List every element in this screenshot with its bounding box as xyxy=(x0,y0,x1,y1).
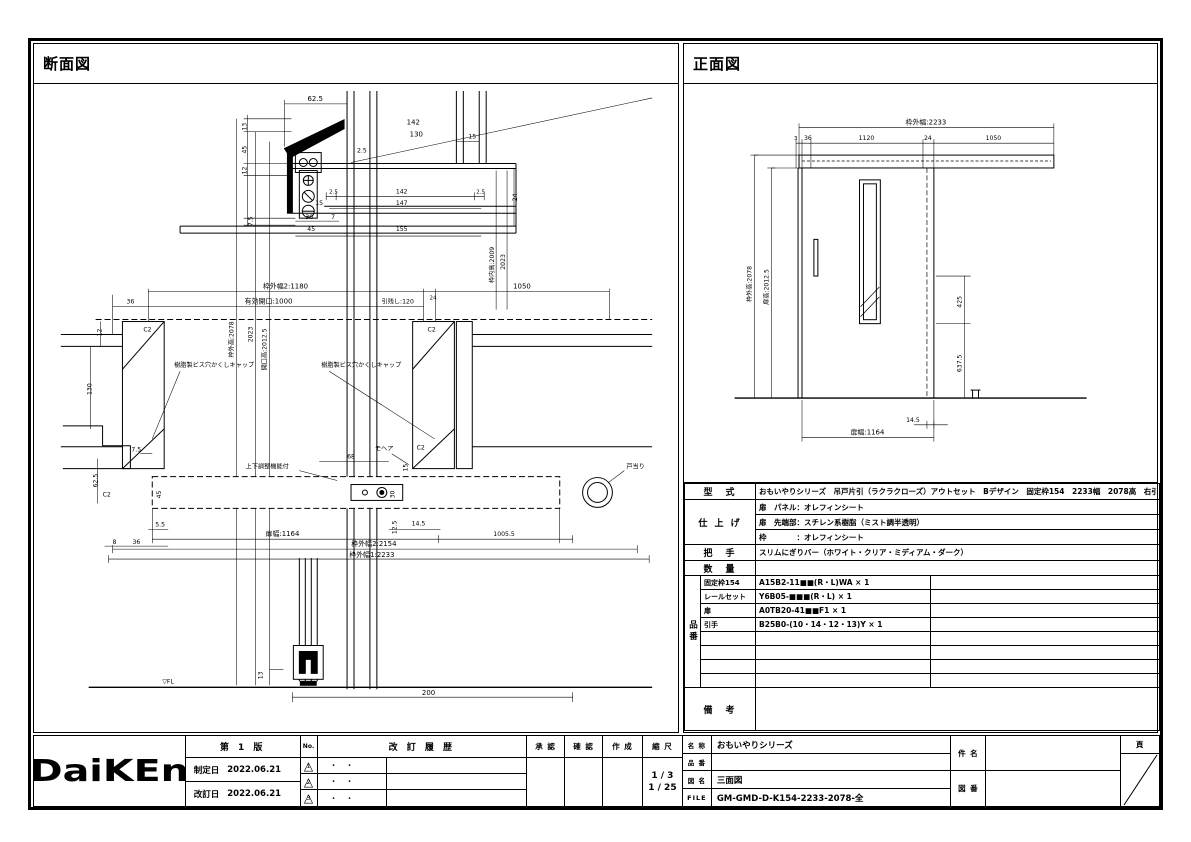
dim-label: 130 xyxy=(87,383,94,395)
dim-label: 24 xyxy=(924,135,932,142)
spec-part-code: A15B2-11■■(R・L)WA × 1 xyxy=(756,576,931,590)
callout-label: モヘア xyxy=(375,446,393,453)
dim-label: 開口高:2012.5 xyxy=(261,328,269,370)
dim-label: 2.5 xyxy=(357,148,367,155)
dim-label: 130 xyxy=(410,131,423,139)
dim-label: 枠外幅2:1180 xyxy=(263,282,308,291)
dim-label: 2.5 xyxy=(329,189,338,195)
dim-label: 62.5 xyxy=(308,95,323,103)
dim-label: 142 xyxy=(407,119,420,127)
dim-label: 13 xyxy=(258,671,265,679)
revised-date-row: 改訂日 2022.06.21 xyxy=(186,782,300,806)
spec-finish-3: 枠 ：オレフィンシート xyxy=(756,530,1160,545)
callout-label: 上下調整機能付 xyxy=(246,463,289,471)
section-view-title: 断面図 xyxy=(34,44,678,84)
dim-label: 36 xyxy=(804,135,812,142)
spec-part-extra xyxy=(931,660,1160,674)
dim-label: 637.5 xyxy=(957,354,964,372)
dim-label: 24 xyxy=(430,296,437,302)
dim-label: 45 xyxy=(242,146,249,154)
revision-mark-row: △2 xyxy=(301,774,317,790)
spec-part-extra xyxy=(931,674,1160,688)
spec-notes-value xyxy=(756,688,1160,731)
drawing-name-value: 三面図 xyxy=(712,771,951,789)
revision-date: ・ ・ xyxy=(318,758,387,773)
dim-label: 12.5 xyxy=(392,520,399,534)
part-mark-label: C2 xyxy=(417,445,425,452)
spec-finish-2: 扉 先端部：スチレン系樹脂（ミスト調半透明） xyxy=(756,515,1160,530)
dim-label: 12 xyxy=(97,328,104,336)
check-value xyxy=(565,758,602,806)
dim-label: 7.5 xyxy=(248,216,255,226)
create-column: 作 成 xyxy=(603,736,643,806)
title-block: DaiKEn 第 1 版 制定日 2022.06.21 改訂日 2022.06.… xyxy=(33,735,1160,807)
revision-history-label: 改 訂 履 歴 xyxy=(318,736,527,758)
spec-handle-value: スリムにぎりバー（ホワイト・クリア・ミディアム・ダーク） xyxy=(756,545,1160,561)
spec-part-name: レールセット xyxy=(701,590,756,604)
meta-values-column: おもいやりシリーズ 三面図 GM-GMD-D-K154-2233-2078-全 xyxy=(712,736,952,806)
file-value: GM-GMD-D-K154-2233-2078-全 xyxy=(712,789,951,806)
edition-column: 第 1 版 制定日 2022.06.21 改訂日 2022.06.21 xyxy=(186,736,301,806)
spec-part-name xyxy=(701,674,756,688)
scale-value-2: 1 / 25 xyxy=(648,783,676,793)
dim-label: 45 xyxy=(307,226,315,233)
callout-label: 樹脂製ビス穴かくしキャップ xyxy=(174,361,255,369)
revised-date: 2022.06.21 xyxy=(227,789,281,799)
dim-label: 8 xyxy=(113,539,117,546)
enacted-label: 制定日 xyxy=(194,764,220,776)
spec-part-extra xyxy=(931,646,1160,660)
drawing-number-label: 図 番 xyxy=(951,771,985,806)
revised-label: 改訂日 xyxy=(194,788,220,800)
dim-label: 14.5 xyxy=(906,417,920,424)
right-labels-column: 件 名 図 番 xyxy=(951,736,986,806)
daiken-logo: DaiKEn xyxy=(34,754,185,789)
revision-mark-row: △3 xyxy=(301,790,317,806)
section-view-drawing: 62.5 142 130 15 2.5 13 45 12 7.5 24 2.5 … xyxy=(34,84,677,731)
drawing-sheet: 断面図 xyxy=(28,38,1163,810)
dim-label: 12 xyxy=(242,166,249,174)
edition-label: 第 1 版 xyxy=(186,736,300,758)
revision-date: ・ ・ xyxy=(318,774,387,789)
dim-label: 引残し:120 xyxy=(382,298,414,306)
dim-label: 枠内高:2009 xyxy=(488,247,496,283)
spec-notes-label: 備 考 xyxy=(685,688,756,731)
dim-label: 7 xyxy=(331,214,335,221)
spec-part-name xyxy=(701,632,756,646)
enacted-date-row: 制定日 2022.06.21 xyxy=(186,758,300,782)
dim-label: 7.5 xyxy=(131,447,141,454)
dim-label: 30 xyxy=(390,490,397,498)
dim-label: 扉高:2012.5 xyxy=(762,269,770,305)
revision-row: ・ ・ xyxy=(318,790,527,806)
spec-part-name: 固定枠154 xyxy=(701,576,756,590)
spec-finish-1: 扉 パネル：オレフィンシート xyxy=(756,500,1160,515)
revision-triangle-icon: △1 xyxy=(302,760,315,772)
spec-handle-label: 把 手 xyxy=(685,545,756,561)
drawing-name-label: 図 名 xyxy=(683,771,711,789)
plan-view xyxy=(61,320,652,509)
front-view-drawing: 枠外幅:2233 3 36 1120 24 1050 枠外高:2078 扉高:2… xyxy=(684,84,1156,482)
part-mark-label: C2 xyxy=(143,326,151,333)
name-label: 名 称 xyxy=(683,736,711,754)
spec-finish-label: 仕 上 げ xyxy=(685,500,756,545)
enacted-date: 2022.06.21 xyxy=(227,765,281,775)
dim-label: 15 xyxy=(403,464,410,472)
dim-label: 62.5 xyxy=(93,474,100,488)
callout-label: 樹脂製ビス穴かくしキャップ xyxy=(321,361,402,369)
dim-label: 1005.5 xyxy=(493,531,515,538)
spec-qty-value xyxy=(756,561,1160,576)
dim-label: 68 xyxy=(347,454,355,461)
dim-label: 枠外高:2078 xyxy=(745,266,753,302)
dim-label: 枠外幅:2233 xyxy=(906,117,947,126)
page-label: 頁 xyxy=(1121,736,1159,754)
drawing-number-value xyxy=(986,771,1120,806)
spec-part-code xyxy=(756,660,931,674)
part-mark-label: C2 xyxy=(103,491,111,498)
section-dim-labels: 62.5 142 130 15 2.5 13 45 12 7.5 24 2.5 … xyxy=(87,95,645,697)
spec-part-name: 扉 xyxy=(701,604,756,618)
dim-label: 13 xyxy=(242,123,249,131)
spec-part-extra xyxy=(931,618,1160,632)
spec-part-name: 引手 xyxy=(701,618,756,632)
page-column: 頁 xyxy=(1121,736,1159,806)
revision-date: ・ ・ xyxy=(318,790,387,806)
scale-value-1: 1 / 3 xyxy=(651,771,673,781)
top-rail-detail xyxy=(180,120,516,233)
spec-part-code: A0TB20-41■■F1 × 1 xyxy=(756,604,931,618)
spec-part-name xyxy=(701,646,756,660)
spec-part-extra xyxy=(931,576,1160,590)
approve-column: 承 認 xyxy=(527,736,565,806)
dim-label: 36 xyxy=(132,539,140,546)
dim-label: 45 xyxy=(156,490,163,498)
revision-triangle-icon: △2 xyxy=(302,776,315,788)
dim-label: 2.5 xyxy=(476,189,485,195)
check-label: 確 認 xyxy=(565,736,602,758)
page-diagonal-line xyxy=(1123,754,1158,806)
dim-label: 24 xyxy=(512,193,519,201)
scale-label: 縮 尺 xyxy=(643,736,682,758)
dim-label: 142 xyxy=(396,188,408,195)
dim-label: 147 xyxy=(396,200,408,207)
logo-cell: DaiKEn xyxy=(34,736,186,806)
page-value xyxy=(1121,754,1159,806)
subject-value xyxy=(986,736,1120,771)
spec-parts-label: 品番 xyxy=(685,576,701,688)
dim-label: 1120 xyxy=(859,135,875,142)
dim-label: 36 xyxy=(126,299,134,306)
dim-label: 1050 xyxy=(986,135,1002,142)
right-values-column xyxy=(986,736,1121,806)
spec-model-label: 型 式 xyxy=(685,484,756,500)
spec-part-name xyxy=(701,660,756,674)
name-value: おもいやりシリーズ xyxy=(712,736,951,754)
spec-part-code xyxy=(756,646,931,660)
floor-level-label: ▽FL xyxy=(162,678,174,685)
revision-history-column: 改 訂 履 歴 ・ ・ ・ ・ ・ ・ xyxy=(318,736,528,806)
spec-part-extra xyxy=(931,632,1160,646)
dim-label: 枠外幅1:2233 xyxy=(349,550,394,559)
dim-label: 2023 xyxy=(248,327,255,343)
spec-part-code: Y6B05-■■■(R・L) × 1 xyxy=(756,590,931,604)
dim-label: 200 xyxy=(422,689,435,697)
spec-part-code xyxy=(756,674,931,688)
section-view-panel: 断面図 xyxy=(33,43,679,733)
create-value xyxy=(603,758,642,806)
dim-label: 扉幅:1164 xyxy=(851,428,885,437)
check-column: 確 認 xyxy=(565,736,603,806)
revision-no-column: No. △1 △2 △3 xyxy=(301,736,318,806)
dim-label: 14.5 xyxy=(412,520,426,527)
spec-model-value: おもいやりシリーズ 吊戸片引（ラクラクローズ）アウトセット Bデザイン 固定枠1… xyxy=(756,484,1160,500)
dim-label: 2023 xyxy=(500,254,507,270)
approve-label: 承 認 xyxy=(527,736,564,758)
part-mark-label: C2 xyxy=(428,326,436,333)
part-label: 品 番 xyxy=(683,754,711,771)
dim-label: 425 xyxy=(957,296,964,308)
spec-part-code: B25B0-(10・14・12・13)Y × 1 xyxy=(756,618,931,632)
front-view-geometry xyxy=(735,155,1087,398)
revision-triangle-icon: △3 xyxy=(302,792,315,804)
dim-label: 3 xyxy=(794,136,798,142)
no-label: No. xyxy=(301,736,317,758)
revision-row: ・ ・ xyxy=(318,774,527,790)
revision-row: ・ ・ xyxy=(318,758,527,774)
spec-part-code xyxy=(756,632,931,646)
dim-label: 155 xyxy=(396,226,408,233)
dim-label: 扉幅:1164 xyxy=(266,529,300,538)
file-label: FILE xyxy=(683,789,711,806)
dim-label: 30 xyxy=(305,214,313,221)
front-view-title: 正面図 xyxy=(684,44,1157,84)
scale-column: 縮 尺 1 / 3 1 / 25 xyxy=(643,736,683,806)
specification-table: 型 式 おもいやりシリーズ 吊戸片引（ラクラクローズ）アウトセット Bデザイン … xyxy=(684,482,1157,731)
callout-label: 戸当り xyxy=(626,463,644,471)
subject-label: 件 名 xyxy=(951,736,985,771)
dim-label: 15 xyxy=(468,134,476,141)
front-view-panel: 正面図 xyxy=(683,43,1158,733)
meta-labels-column: 名 称 品 番 図 名 FILE xyxy=(683,736,712,806)
dim-label: 有効開口:1000 xyxy=(245,297,293,306)
dim-label: 1050 xyxy=(513,283,531,291)
dim-label: 枠外高:2078 xyxy=(228,321,236,357)
spec-part-extra xyxy=(931,604,1160,618)
create-label: 作 成 xyxy=(603,736,642,758)
approve-value xyxy=(527,758,564,806)
part-value xyxy=(712,754,951,771)
scale-values: 1 / 3 1 / 25 xyxy=(643,758,682,806)
spec-part-extra xyxy=(931,590,1160,604)
revision-mark-row: △1 xyxy=(301,758,317,774)
spec-qty-label: 数 量 xyxy=(685,561,756,576)
dim-label: 枠外幅2:2154 xyxy=(351,539,397,548)
dim-label: 5.5 xyxy=(155,521,165,528)
dim-label: 15 xyxy=(315,200,323,207)
